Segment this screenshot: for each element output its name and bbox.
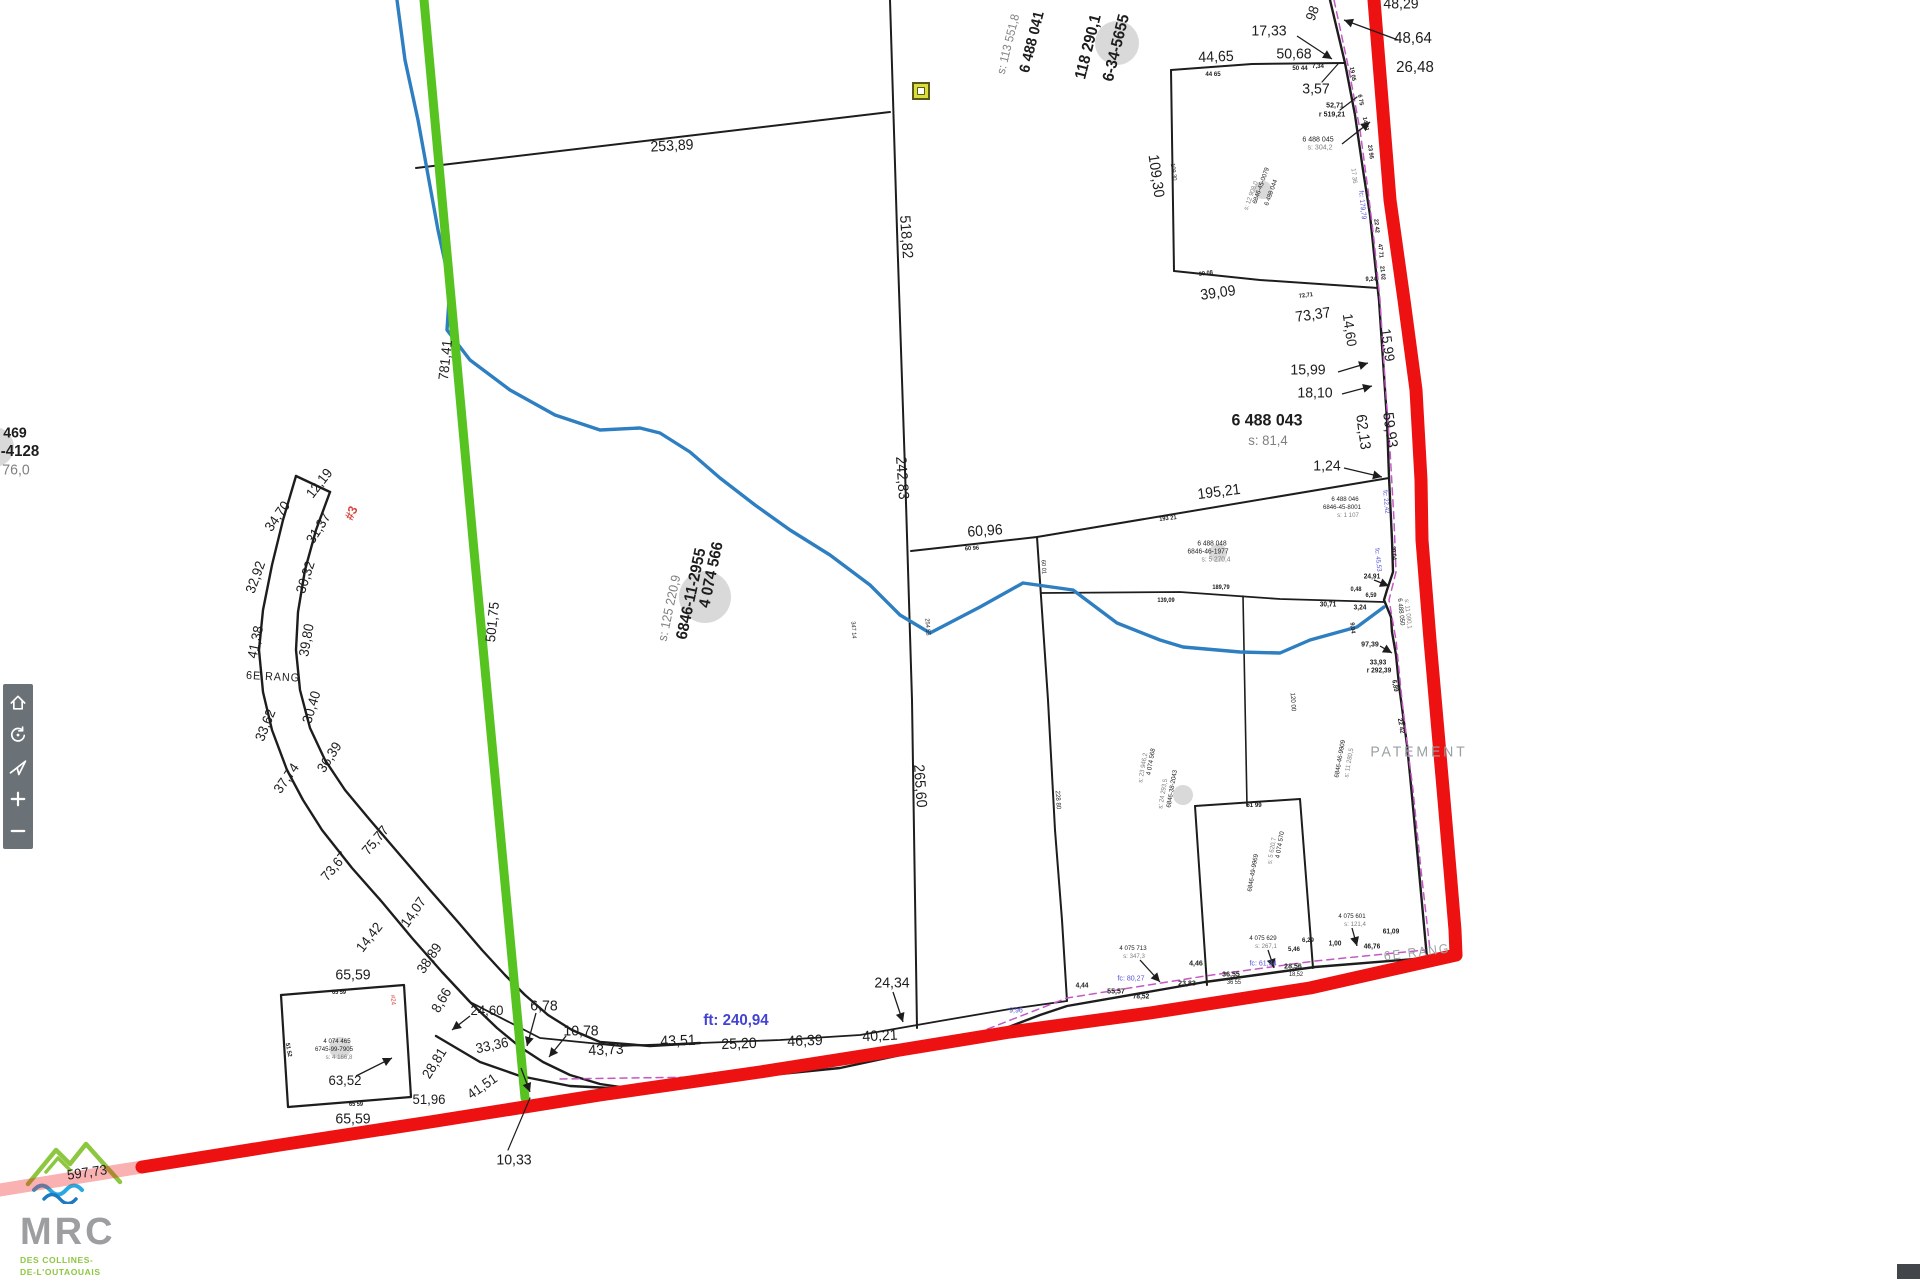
vertex-marker [0, 427, 14, 467]
survey-marker-icon[interactable] [912, 82, 930, 100]
road-west-left-edge [259, 476, 640, 1090]
red-boundary-south-faded [0, 1167, 142, 1190]
plus-icon [8, 789, 28, 809]
arrowhead [1372, 471, 1382, 480]
home-icon [8, 693, 28, 713]
vertex-marker [1173, 785, 1193, 805]
zoom-in-button[interactable] [4, 784, 32, 814]
vertex-marker [1254, 181, 1272, 199]
arrowhead [1350, 936, 1359, 946]
reset-rotation-icon [8, 725, 28, 745]
stream [397, 0, 1384, 653]
lot-line-northwest [416, 112, 890, 168]
navigation-arrow-icon [8, 757, 28, 777]
parcel-top-edge [1171, 63, 1345, 70]
zoom-out-button[interactable] [4, 816, 32, 846]
leader-3-57 [1322, 64, 1338, 82]
map-toolbar [3, 684, 33, 849]
small-parcel-right [1300, 799, 1313, 968]
arrowhead [1362, 384, 1372, 393]
vertex-marker [329, 1037, 351, 1059]
locate-button[interactable] [4, 752, 32, 782]
line-189-79 [1041, 592, 1384, 602]
south-boundary [436, 958, 1427, 1089]
minus-icon [8, 821, 28, 841]
vertex-marker [679, 571, 731, 623]
arrowhead [549, 1047, 558, 1057]
arrowhead [1360, 122, 1370, 131]
road-top-cap [296, 476, 330, 492]
vertex-marker [1095, 21, 1139, 65]
parcel-left-edge [1171, 70, 1174, 271]
arrowhead [896, 1012, 905, 1022]
small-parcel-left [1195, 806, 1207, 985]
scrollbar-corner[interactable] [1897, 1264, 1920, 1279]
lot-line-central-vertical [890, 0, 917, 1028]
survey-marker-dot [917, 87, 925, 95]
arrowhead [1322, 50, 1332, 59]
line-60-96 [911, 478, 1389, 551]
line-interior-vertical [1243, 596, 1247, 806]
arrowhead [1358, 361, 1368, 370]
line-interior-vertical-east [1037, 537, 1067, 1001]
map-viewport: MRC DES COLLINES- DE-L'OUTAOUAIS 469-412… [0, 0, 1920, 1279]
reset-view-button[interactable] [4, 720, 32, 750]
cadastral-map-canvas[interactable] [0, 0, 1920, 1279]
parcel-bottom-edge [1174, 271, 1378, 288]
red-boundary-south [142, 955, 1456, 1167]
arrowhead [525, 1036, 534, 1046]
vertex-marker [1209, 544, 1227, 562]
green-measure-line [424, 0, 525, 1098]
arrowhead [1382, 645, 1392, 653]
home-button[interactable] [4, 688, 32, 718]
arrowhead [452, 1021, 462, 1030]
